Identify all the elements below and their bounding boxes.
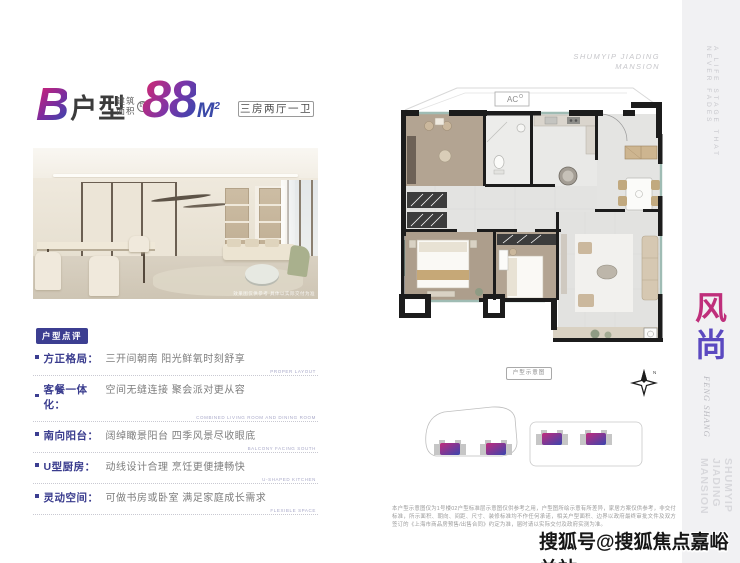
photo-daybed [223, 244, 295, 260]
plan-diagram-label: 户型示意图 [506, 367, 552, 380]
review-badge: 户型点评 [36, 328, 88, 344]
area-number: 88 [142, 78, 196, 122]
svg-text:N: N [653, 370, 656, 375]
bullet-icon [35, 494, 39, 498]
photo-cove-light [53, 174, 298, 177]
svg-text:AC: AC [507, 95, 518, 104]
review-item: U型厨房： 动线设计合理 烹饪更便捷畅快 U-SHAPED KITCHEN [33, 453, 318, 484]
unit-letter: B [36, 84, 67, 124]
review-item: 灵动空间： 可做书房或卧室 满足家庭成长需求 FLEXIBLE SPACE [33, 484, 318, 515]
area-label-line2: 面积 [115, 106, 137, 116]
site-plan-diagrams [418, 404, 648, 474]
strip-tagline: A LIFE STAGE THAT NEVER FADES [705, 46, 719, 186]
photo-dining-chair [35, 252, 61, 290]
review-item: 客餐一体化： 空间无缝连接 聚会派对更从容 COMBINED LIVING RO… [33, 376, 318, 422]
photo-dining-chair [89, 256, 119, 296]
room-spec-box: 三房两厅一卫 [238, 101, 314, 117]
area-label-line1: 建筑 [115, 96, 137, 106]
bullet-icon [35, 432, 39, 436]
strip-cn-wordmark: 风 尚 [682, 290, 740, 364]
brand-wordmark-top: SHUMYIP JIADING MANSION [540, 52, 660, 72]
area-label: 建筑 面积 约 [115, 96, 137, 116]
sohu-watermark: 搜狐号@搜狐焦点嘉峪关站 [539, 527, 740, 563]
roof-outline: AC [405, 88, 658, 110]
strip-brand-bottom: SHUMYIP JIADING MANSION [698, 458, 734, 538]
strip-en-wordmark: FENG SHANG [702, 376, 712, 446]
bullet-icon [35, 355, 39, 359]
photo-caption: 效果图仅供参考 具体以实际交付为准 [233, 291, 315, 297]
photo-lounge-chair [287, 245, 311, 277]
photo-coffee-table [245, 264, 279, 284]
review-list: 方正格局： 三开间朝南 阳光鲜氧时刻舒享 PROPER LAYOUT 客餐一体化… [33, 345, 318, 515]
floor-plan: AC [395, 84, 670, 364]
interior-render-photo: 效果图仅供参考 具体以实际交付为准 [33, 148, 318, 299]
flyer-page: B 户型 建筑 面积 约 88 M2 三房两厅一卫 [0, 0, 740, 563]
area-value: 88 M2 [142, 78, 220, 122]
bullet-icon [35, 463, 39, 467]
photo-glass-partition [81, 182, 177, 267]
bullet-icon [35, 394, 39, 398]
unit-title: B 户型 [36, 84, 126, 124]
area-unit: M2 [197, 96, 220, 122]
review-item: 方正格局： 三开间朝南 阳光鲜氧时刻舒享 PROPER LAYOUT [33, 345, 318, 376]
photo-dining-chair [129, 236, 149, 252]
review-item: 南向阳台： 阔绰瞰景阳台 四季风景尽收眼底 BALCONY FACING SOU… [33, 422, 318, 453]
legal-disclaimer: 本户型示意图仅为1号楼02户型标准层示意图仅供参考之用，户型图所绘示意有所差异，… [392, 505, 676, 529]
compass-icon: N [629, 368, 659, 398]
